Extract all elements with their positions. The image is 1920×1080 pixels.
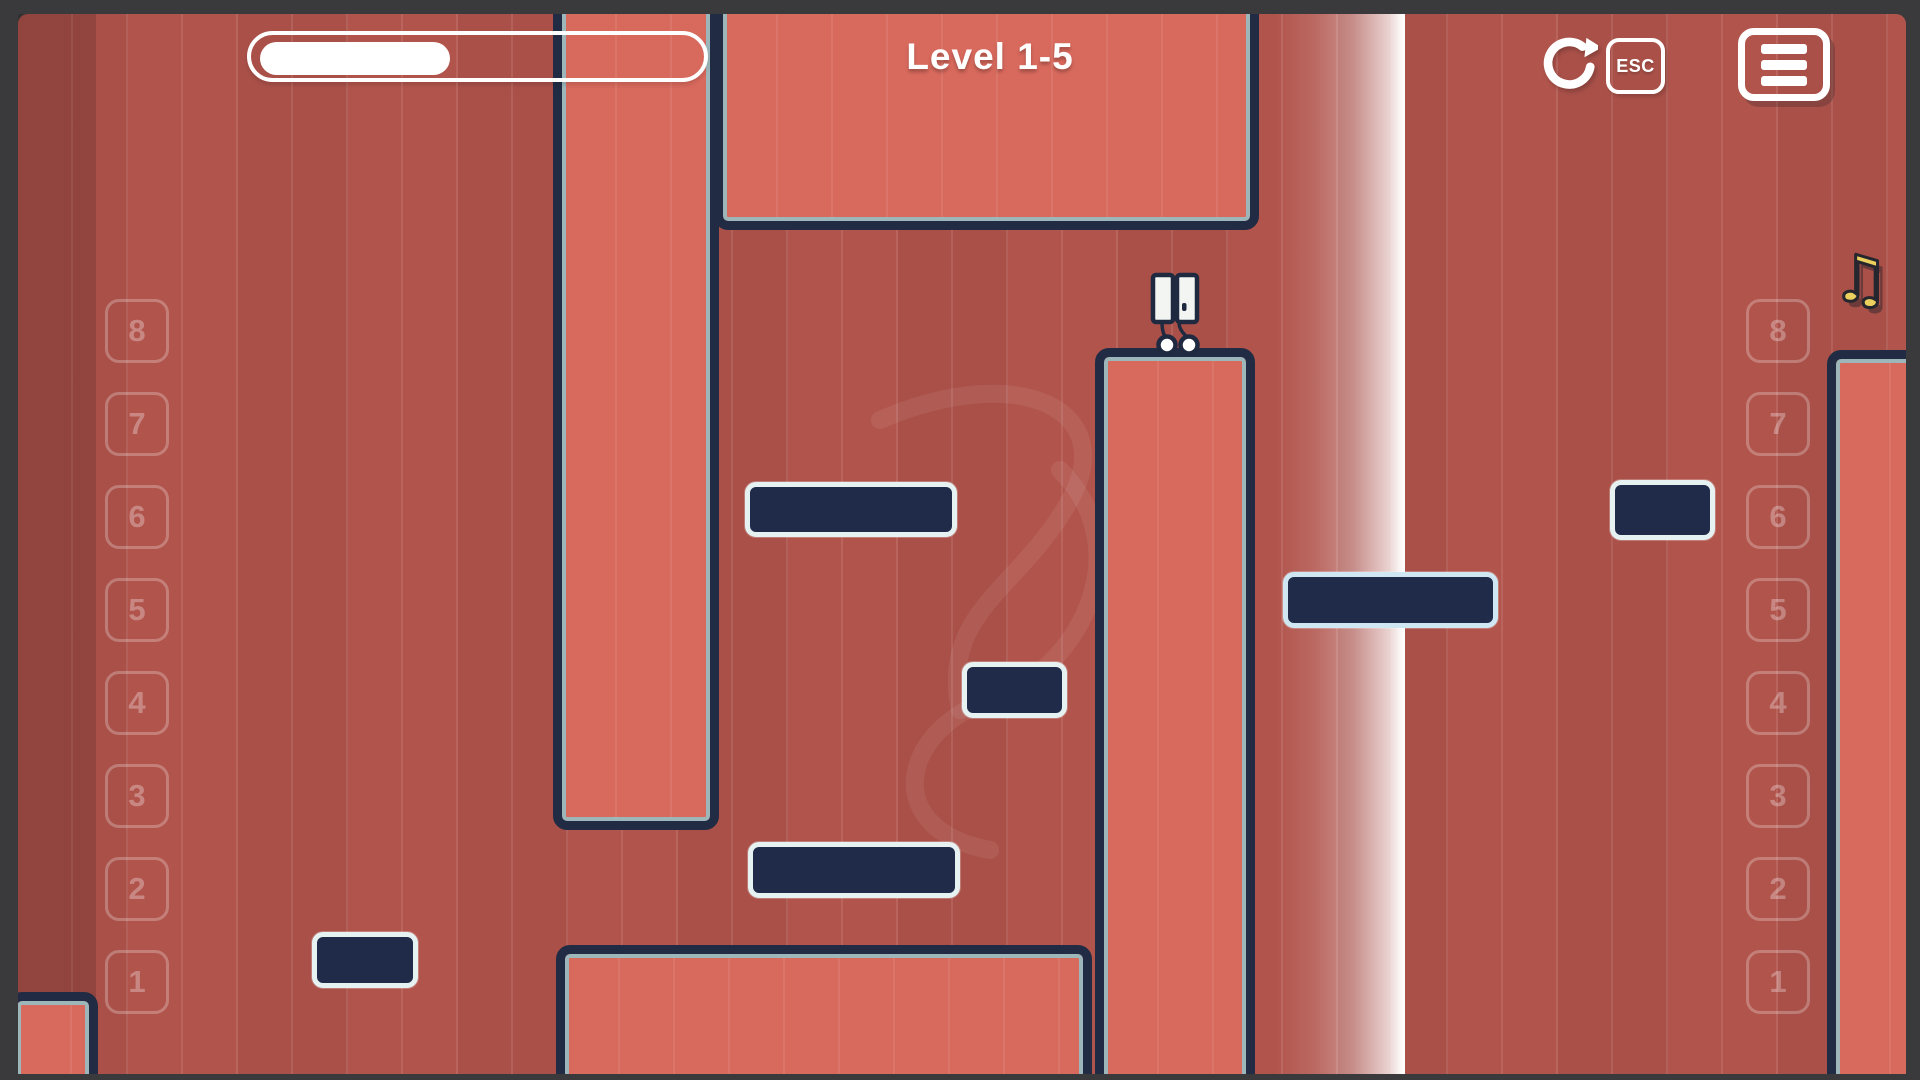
beat-row-right-2: 2 — [1746, 857, 1810, 921]
beat-row-left-8: 8 — [105, 299, 169, 363]
frame-bottom — [0, 1074, 1920, 1080]
esc-button[interactable]: ESC — [1606, 38, 1665, 94]
wall-left-column — [553, 0, 719, 830]
wall-center-tower — [1095, 348, 1255, 1080]
platform-left-row2 — [748, 842, 960, 898]
frame-left — [0, 0, 18, 1080]
beat-row-left-4: 4 — [105, 671, 169, 735]
beat-row-left-7: 7 — [105, 392, 169, 456]
progress-bar — [247, 31, 708, 82]
beat-row-right-3: 3 — [1746, 764, 1810, 828]
hamburger-menu-icon — [1761, 60, 1807, 70]
hamburger-menu-icon — [1761, 76, 1807, 86]
restart-icon — [1548, 38, 1598, 85]
frame-top — [0, 0, 1920, 14]
player-foot-left — [1159, 337, 1176, 354]
beat-row-right-6: 6 — [1746, 485, 1810, 549]
beat-row-left-3: 3 — [105, 764, 169, 828]
left-shade-column — [18, 14, 96, 1076]
player-character — [1138, 262, 1218, 362]
wall-top-center — [714, 0, 1259, 230]
beat-row-right-8: 8 — [1746, 299, 1810, 363]
platform-right-row5 — [1283, 572, 1498, 628]
platform-left-row6 — [745, 482, 957, 537]
player-body-right — [1177, 275, 1197, 322]
beat-row-right-7: 7 — [1746, 392, 1810, 456]
beat-row-right-4: 4 — [1746, 671, 1810, 735]
beat-row-left-2: 2 — [105, 857, 169, 921]
level-title: Level 1-5 — [740, 36, 1240, 78]
platform-far-right-row6 — [1610, 480, 1715, 540]
beat-row-left-5: 5 — [105, 578, 169, 642]
player-foot-right — [1181, 337, 1198, 354]
beat-row-left-1: 1 — [105, 950, 169, 1014]
music-note-icon: ♫ — [1832, 248, 1889, 312]
beat-scan-beam — [1275, 0, 1405, 1080]
beat-row-right-1: 1 — [1746, 950, 1810, 1014]
menu-button[interactable] — [1738, 28, 1830, 101]
restart-button[interactable] — [1540, 34, 1598, 92]
platform-far-left-row1 — [312, 932, 418, 988]
platform-center-row4 — [962, 662, 1067, 718]
wall-bottom-center — [556, 945, 1092, 1080]
hamburger-menu-icon — [1761, 44, 1807, 54]
player-body-left — [1153, 275, 1173, 322]
esc-button-label: ESC — [1616, 56, 1655, 77]
wall-bottom-left-corner — [8, 992, 98, 1080]
player-eye — [1182, 303, 1187, 311]
beat-row-right-5: 5 — [1746, 578, 1810, 642]
frame-right — [1906, 0, 1920, 1080]
beat-row-left-6: 6 — [105, 485, 169, 549]
game-stage: 8765432187654321 ♫ Level 1-5 ESC — [0, 0, 1920, 1080]
progress-bar-fill — [260, 42, 450, 75]
